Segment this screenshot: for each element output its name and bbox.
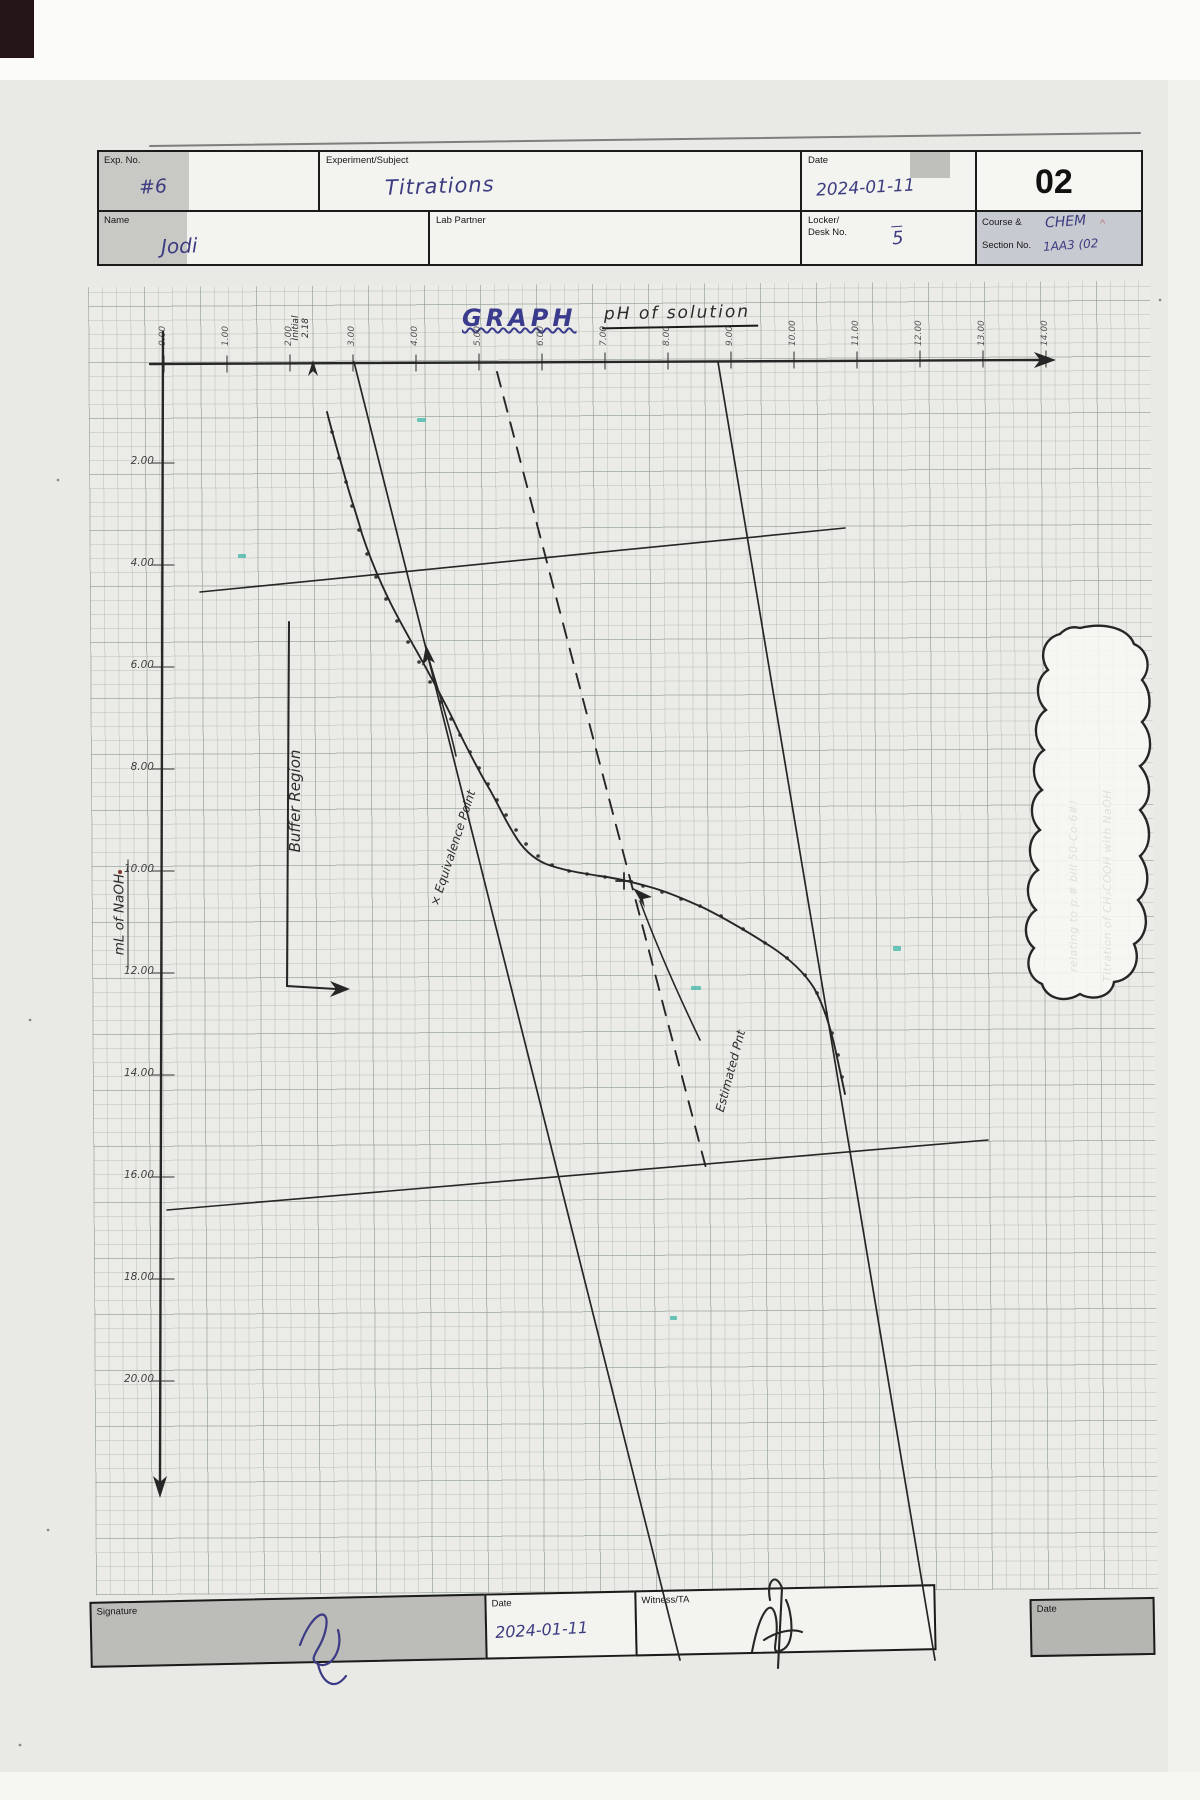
page-number-cell: 02 [975,150,1143,212]
x-tick-7: 7.00 [599,302,611,346]
x-tick-4: 4.00 [410,302,422,346]
initial-ph-annotation: Initial 2.18 [291,307,311,349]
x-tick-13: 13.00 [977,302,989,346]
graph-paper-grid [88,281,1158,1595]
subject-label: Experiment/Subject [326,156,408,167]
x-tick-10: 10.00 [788,302,800,346]
scanned-lab-notebook-page: Exp. No. #6 Experiment/Subject Titration… [0,0,1200,1800]
locker-value: 5 [891,226,904,250]
x-tick-8: 8.00 [662,302,674,346]
footer-date-value: 2024-01-11 [495,1618,589,1642]
cloud-note-line-1: Titration of CH₃COOH with NaOH [1101,634,1114,982]
footer-date2-cell: Date [1030,1597,1156,1657]
teal-mark [670,1316,677,1320]
red-caret-artifact: ^ [1100,218,1105,230]
y-tick-8: 18.00 [108,1271,154,1283]
teal-mark [893,946,901,951]
x-tick-6: 6.00 [536,302,548,346]
y-tick-3: 8.00 [108,761,154,773]
course-cell: Course & Section No. CHEM 1AA3 (02 [975,210,1143,266]
footer-date2-label: Date [1037,1605,1057,1616]
buffer-region-label: Buffer Region [286,721,304,881]
x-tick-3: 3.00 [347,302,359,346]
exp-no-value: #6 [138,175,167,198]
name-label: Name [104,216,129,227]
page-number: 02 [1035,163,1073,202]
course-value-1: CHEM [1044,213,1086,232]
subject-cell: Experiment/Subject Titrations [318,150,802,212]
signature-cell: Signature [89,1594,487,1668]
x-tick-14: 14.00 [1040,302,1052,346]
x-tick-11: 11.00 [851,302,863,346]
date-value: 2024-01-11 [816,175,916,200]
y-tick-6: 14.00 [108,1067,154,1079]
x-tick-12: 12.00 [914,302,926,346]
signature-label: Signature [97,1607,138,1618]
scanner-corner-artifact [0,0,34,58]
x-tick-0: 0.00 [158,302,170,346]
y-tick-2: 6.00 [108,659,154,671]
scanner-bottom-margin [0,1772,1200,1800]
lab-partner-label: Lab Partner [436,216,486,227]
locker-label-2: Desk No. [808,228,847,239]
course-label-1: Course & [982,218,1022,229]
date-label: Date [808,156,828,167]
exp-no-cell: Exp. No. #6 [97,150,320,212]
locker-cell: Locker/ Desk No. 5 [800,210,977,266]
teal-mark [238,554,246,558]
subject-value: Titrations [385,172,495,200]
exp-no-label: Exp. No. [104,156,140,167]
x-tick-1: 1.00 [221,302,233,346]
witness-label: Witness/TA [641,1595,689,1607]
course-value-2: 1AA3 (02 [1043,236,1099,254]
name-value: Jodi [161,233,198,258]
lab-partner-cell: Lab Partner [428,210,802,266]
scanner-top-margin [0,0,1200,80]
teal-mark [691,986,701,990]
y-tick-0: 2.00 [108,455,154,467]
date-cell-shading [910,152,950,178]
initial-ph-word: Initial [291,307,301,349]
footer-date-label: Date [491,1599,511,1610]
y-tick-1: 4.00 [108,557,154,569]
footer-date-cell: Date 2024-01-11 [484,1590,637,1659]
y-tick-9: 20.00 [108,1373,154,1385]
y-axis-label: mL of NaOH [112,860,129,970]
red-dot-artifact [118,870,122,874]
date-cell: Date 2024-01-11 [800,150,977,212]
initial-ph-value: 2.18 [301,307,311,349]
scanner-right-margin [1168,80,1200,1772]
cloud-note-line-2: relating to p.# bill 50-Co-6#! [1067,642,1080,972]
name-cell: Name Jodi [97,210,430,266]
teal-mark [417,418,426,422]
footer-table: Signature Date 2024-01-11 Witness/TA [89,1584,936,1668]
x-tick-9: 9.00 [725,302,737,346]
y-tick-7: 16.00 [108,1169,154,1181]
header-skew-line [150,133,1140,146]
locker-label-1: Locker/ [808,216,839,227]
course-label-2: Section No. [982,241,1031,252]
x-tick-5: 5.00 [473,302,485,346]
witness-cell: Witness/TA [634,1584,936,1656]
